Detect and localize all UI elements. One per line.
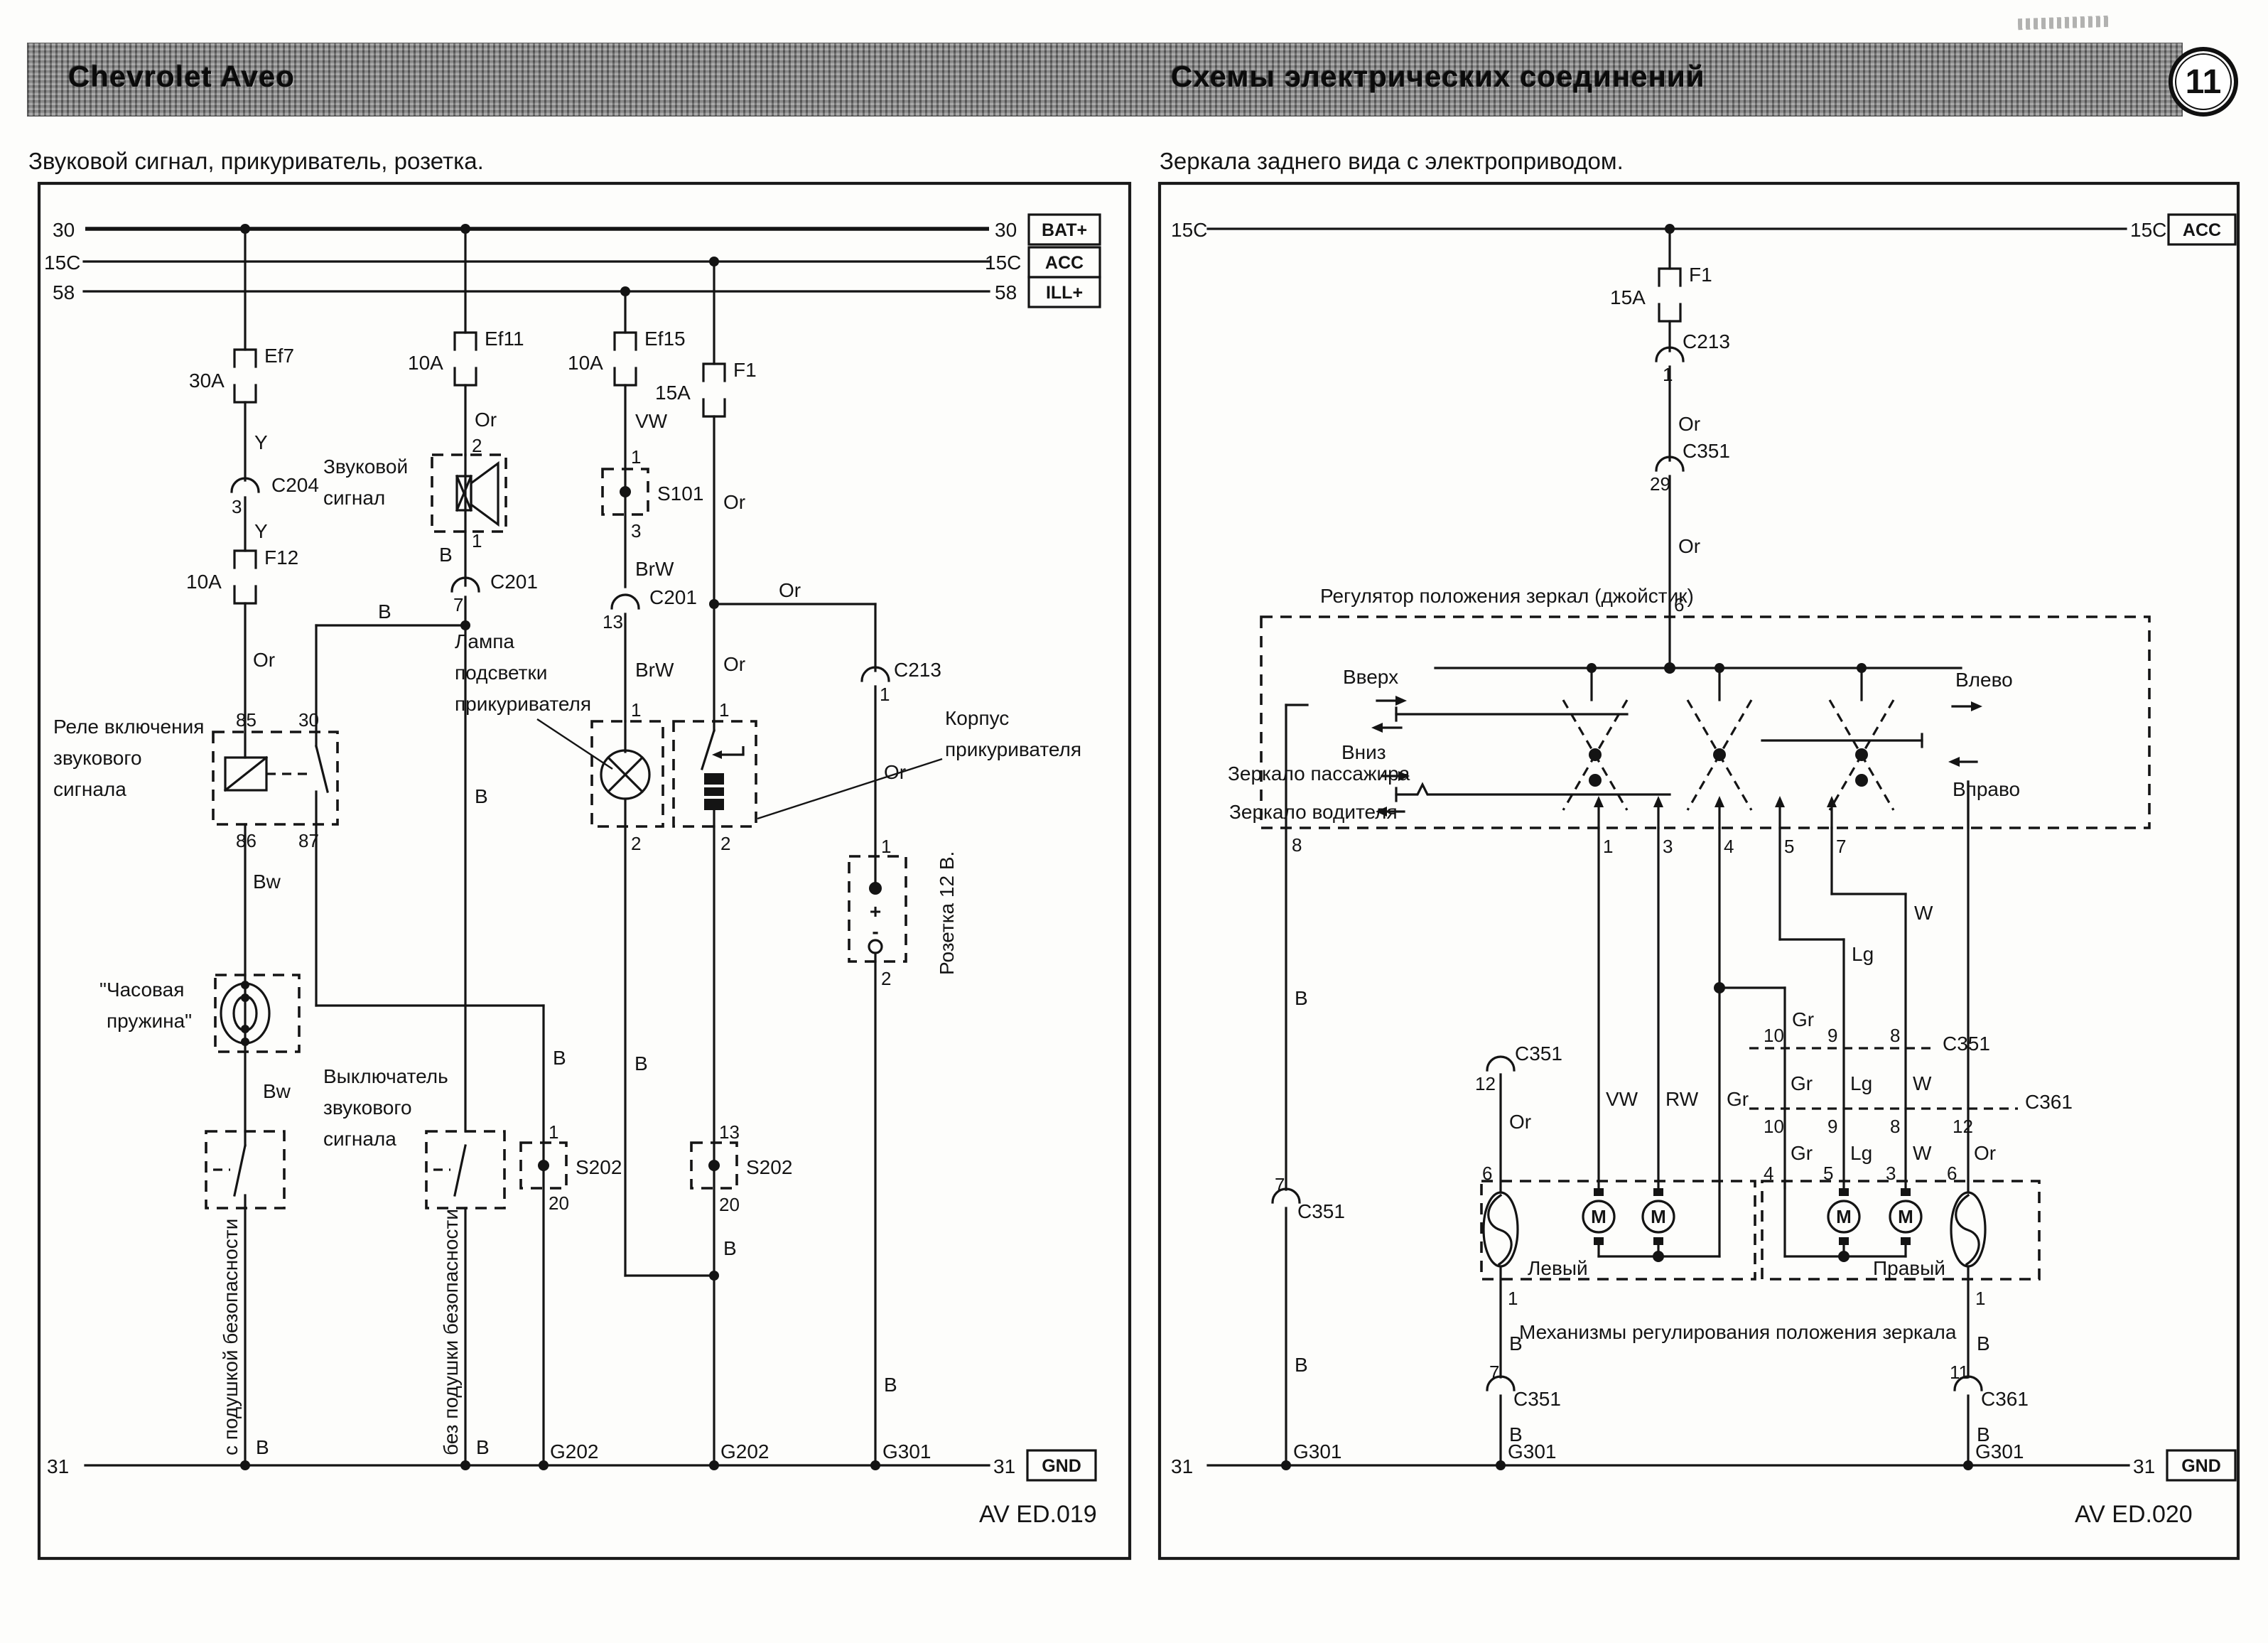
wire-label: W [1913, 1072, 1932, 1094]
left-diagram: 30 15C 58 31 30 BAT+ 15C ACC 58 ILL+ 31 … [39, 183, 1130, 1558]
bus-30-right: 30 [995, 219, 1017, 241]
relay-coil-icon [225, 758, 266, 790]
pin: 1 [631, 446, 641, 468]
socket-label: Розетка 12 В. [936, 851, 958, 975]
wiring-diagrams: Звуковой сигнал, прикуриватель, розетка.… [0, 0, 2268, 1643]
wire-label: W [1913, 1142, 1932, 1164]
pin: 7 [1836, 836, 1846, 857]
pin: 85 [236, 709, 256, 731]
wire-label: RW [1665, 1088, 1699, 1110]
dir-down: Вниз [1341, 741, 1386, 763]
pin: 3 [631, 520, 641, 542]
wire-label: Or [253, 649, 275, 671]
fuse-f1-label: F1 [733, 359, 757, 381]
wire-label: Gr [1791, 1072, 1813, 1094]
lamp-label-1: Лампа [455, 630, 514, 652]
dir-right: Вправо [1953, 778, 2020, 800]
wire-label: BrW [635, 659, 674, 681]
pin: 10 [1764, 1116, 1784, 1137]
ground-label: G301 [1293, 1440, 1342, 1462]
joystick-label: Регулятор положения зеркал (джойстик) [1320, 585, 1694, 607]
dir-up: Вверх [1343, 666, 1398, 688]
wire-label: Y [254, 520, 268, 542]
wire-label: Y [254, 431, 268, 453]
wire-label: B [1295, 987, 1308, 1009]
dir-left: Влево [1955, 669, 2013, 691]
wire-label: Lg [1850, 1142, 1872, 1164]
bus-31-right: 31 [2133, 1455, 2155, 1477]
clock-spring-icon [215, 975, 299, 1052]
spring-label-1: "Часовая [99, 979, 184, 1001]
splice-s202-label: S202 [746, 1156, 792, 1178]
right-caption: AV ED.020 [2075, 1501, 2193, 1528]
bus-15c-label: 15C [44, 252, 80, 274]
manual-page: { "header": { "brand": "Chevrolet Aveo",… [0, 0, 2268, 1643]
bus-58-right: 58 [995, 281, 1017, 303]
horn-relay-branch: Ef7 30A Y 3 C204 Y F12 10A Or [186, 224, 319, 758]
fuse-f1-amps: 15A [655, 382, 691, 404]
wire-label: B [553, 1047, 566, 1069]
wire-label: B [256, 1436, 269, 1458]
fuse-ef7-label: Ef7 [264, 345, 294, 367]
wire-label: Bw [263, 1080, 291, 1102]
heater-icon [1951, 1192, 1985, 1266]
pin: 29 [1650, 473, 1670, 495]
wire-label: Or [884, 761, 906, 783]
fuse-ef15-amps: 10A [568, 352, 603, 374]
lighter-housing-icon [674, 721, 756, 826]
motor-letter: M [1591, 1206, 1606, 1227]
motor-letter: M [1651, 1206, 1666, 1227]
wire-label: W [1914, 902, 1933, 924]
left-caption: AV ED.019 [979, 1501, 1097, 1528]
right-diagram-title: Зеркала заднего вида с электроприводом. [1160, 148, 1624, 174]
variant-without-airbag: без подушки безопасности [440, 1209, 462, 1455]
pin: 3 [232, 496, 242, 517]
horn-branch: Ef11 10A Or 2 Звуковой сигнал 1 B 7 C201 [323, 224, 538, 1470]
horn-relay: 85 30 86 87 Реле включения звукового сиг… [53, 709, 337, 851]
housing-label-2: прикуривателя [945, 738, 1081, 760]
bus-31-label: 31 [47, 1455, 69, 1477]
bus-58-label: 58 [53, 281, 75, 303]
wire-label: Gr [1791, 1142, 1813, 1164]
connector-c351-label: C351 [1513, 1388, 1561, 1410]
wire-label: Or [1509, 1111, 1531, 1133]
horn-switch-airbag-icon [206, 1131, 284, 1208]
pin: 1 [472, 530, 482, 551]
joystick-pins: 8 1 3 4 5 7 [1292, 834, 1846, 857]
pin: 1 [1975, 1288, 1985, 1309]
lamp-label-3: прикуривателя [455, 693, 591, 715]
fuse-f1-label: F1 [1689, 264, 1712, 286]
pin: 2 [472, 435, 482, 456]
wire-label: VW [635, 410, 668, 432]
ground-label: G301 [882, 1440, 931, 1462]
bus-31-right: 31 [993, 1455, 1015, 1477]
fuse-ef7-icon [234, 350, 256, 402]
ground-label: G202 [720, 1440, 769, 1462]
wire-label: Or [475, 409, 497, 431]
relay-label-3: сигнала [53, 778, 126, 800]
wire-label: VW [1606, 1088, 1638, 1110]
wire-label: Or [723, 491, 745, 513]
fuse-ef15-label: Ef15 [644, 328, 686, 350]
left-heater-feed: C351 12 Or 6 [1475, 1043, 1562, 1192]
lighter-lamp-branch: Ef15 10A VW 1 S101 3 BrW 13 C201 BrW 1 [455, 286, 714, 1276]
spring-label-2: пружина" [107, 1010, 192, 1032]
fuse-ef15-icon [615, 333, 636, 385]
switch-label-2: звукового [323, 1097, 412, 1119]
pin: 1 [719, 699, 729, 721]
wire-label: Or [779, 579, 801, 601]
right-mirror-mechanism: M M Правый [1762, 1181, 2039, 1279]
leader-line [537, 719, 612, 769]
switch-label-3: сигнала [323, 1128, 396, 1150]
pin: 13 [603, 611, 623, 632]
pin: 8 [1890, 1025, 1900, 1046]
mirror-passenger: Зеркало пассажира [1228, 763, 1410, 785]
splice-s101-label: S101 [657, 483, 703, 505]
horn-switch-noairbag-icon [426, 1131, 504, 1208]
left-mech-label: Левый [1528, 1257, 1588, 1279]
wire-label: Or [1974, 1142, 1996, 1164]
wire-label: Bw [253, 871, 281, 893]
motor-letter: M [1836, 1206, 1852, 1227]
socket-minus: - [872, 920, 878, 942]
wire-label: B [1509, 1332, 1523, 1354]
splice-s202-label: S202 [576, 1156, 622, 1178]
fuse-f1-amps: 15A [1610, 286, 1646, 308]
heater-icon [1484, 1192, 1518, 1266]
wire-label: Or [1678, 535, 1700, 557]
connector-c213-label: C213 [894, 659, 941, 681]
horn-label-1: Звуковой [323, 456, 408, 478]
mirror-driver: Зеркало водителя [1229, 801, 1398, 823]
lamp-label-2: подсветки [455, 662, 547, 684]
connector-c361-label: C361 [2025, 1091, 2073, 1113]
ground-label: G301 [1508, 1440, 1557, 1462]
pin: 10 [1764, 1025, 1784, 1046]
acc-label: ACC [2183, 220, 2221, 240]
gnd-label: GND [1042, 1456, 1081, 1476]
motor-icon: M [1643, 1188, 1674, 1256]
pin: 8 [1890, 1116, 1900, 1137]
mechanisms-label: Механизмы регулирования положения зеркал… [1519, 1321, 1957, 1343]
pin: 1 [631, 699, 641, 721]
pin: 20 [719, 1194, 740, 1215]
relay-switch-icon [316, 732, 328, 824]
lighter-housing-branch: F1 15A Or Or Or 1 2 13 [655, 257, 1081, 1470]
pin: 4 [1724, 836, 1734, 857]
pin: 1 [880, 684, 890, 705]
pin: 12 [1475, 1073, 1496, 1094]
leader-line [757, 759, 942, 819]
fuse-ef11-icon [455, 333, 476, 385]
switch-label-1: Выключатель [323, 1065, 448, 1087]
wire-label: Or [723, 653, 745, 675]
fuse-f12-label: F12 [264, 546, 298, 569]
wire-label: Lg [1850, 1072, 1872, 1094]
left-mirror-ground: 1 B 7 C351 B G301 [1487, 1266, 1561, 1470]
joystick-direction-labels: Вверх Вниз Зеркало пассажира Зеркало вод… [1228, 666, 2020, 823]
pin: 1 [1663, 364, 1673, 385]
pin: 9 [1827, 1025, 1837, 1046]
wire-label: Gr [1792, 1008, 1814, 1030]
fuse-f1-icon [703, 364, 725, 416]
socket-icon: + - [849, 856, 906, 961]
pin: 2 [631, 833, 641, 854]
motor-icon: M [1583, 1188, 1614, 1256]
connector-c361-label: C361 [1981, 1388, 2029, 1410]
wire-label: B [475, 785, 488, 807]
pin: 2 [881, 968, 891, 989]
wire-label: B [378, 600, 391, 623]
connector-c204-label: C204 [271, 474, 319, 496]
pin: 1 [1603, 836, 1613, 857]
right-mech-label: Правый [1873, 1257, 1945, 1279]
wire-label: BrW [635, 558, 674, 580]
power-buses: 30 15C 58 31 30 BAT+ 15C ACC 58 ILL+ 31 … [44, 215, 1100, 1480]
fuse-ef7-amps: 30A [189, 370, 225, 392]
connector-c201-icon [612, 595, 639, 608]
joystick-ground-line: B 7 C351 B G301 [1273, 828, 1345, 1470]
wire-label: Lg [1852, 943, 1874, 965]
pin: 12 [1953, 1116, 1973, 1137]
pin: 20 [549, 1192, 569, 1214]
power-buses: 15C 15C ACC 31 31 GND [1171, 215, 2235, 1480]
variant-with-airbag: с подушкой безопасности [220, 1219, 242, 1455]
wire-label: Gr [1727, 1088, 1749, 1110]
fuse-ef11-label: Ef11 [485, 328, 524, 350]
socket-plus: + [870, 900, 881, 922]
connector-c201-label: C201 [490, 571, 538, 593]
pin: 1 [1508, 1288, 1518, 1309]
pin: 5 [1784, 836, 1794, 857]
mirror-joystick: Вверх Вниз Зеркало пассажира Зеркало вод… [1228, 617, 2149, 828]
bus-15c-right: 15C [2130, 219, 2166, 241]
right-mirror-ground: 1 B 11 C361 B G301 [1950, 1266, 2029, 1470]
wire-label: B [884, 1374, 897, 1396]
connector-c361-row: C361 10 9 8 12 Gr Lg W Or 4 5 3 6 [1749, 1091, 2073, 1192]
connector-c351-label: C351 [1683, 440, 1730, 462]
acc-label: ACC [1045, 253, 1084, 273]
fuse-f12-icon [234, 551, 256, 603]
pin: 8 [1292, 834, 1302, 856]
bus-30-label: 30 [53, 219, 75, 241]
pin: 3 [1663, 836, 1673, 857]
wire-label: B [476, 1436, 490, 1458]
pin: 7 [453, 594, 463, 615]
relay-label-2: звукового [53, 747, 142, 769]
motor-icon: M [1890, 1188, 1921, 1256]
right-frame [1160, 183, 2238, 1558]
right-diagram: 15C 15C ACC 31 31 GND F1 15A C213 1 Or [1160, 183, 2238, 1558]
connector-c213-label: C213 [1683, 330, 1730, 352]
housing-label-1: Корпус [945, 707, 1009, 729]
wire-label: B [439, 544, 453, 566]
pin: 2 [720, 833, 730, 854]
pin: 1 [549, 1121, 558, 1143]
left-diagram-title: Звуковой сигнал, прикуриватель, розетка. [28, 148, 484, 174]
horn-speaker-icon [432, 455, 506, 532]
wire-label: B [634, 1052, 648, 1074]
wire-label: B [723, 1237, 737, 1259]
motor-icon: M [1828, 1188, 1859, 1256]
gnd-label: GND [2181, 1456, 2221, 1476]
bus-31-label: 31 [1171, 1455, 1193, 1477]
motor-letter: M [1898, 1206, 1913, 1227]
left-mirror-mechanism: M M Левый [1481, 1181, 1755, 1279]
ground-label: G202 [550, 1440, 599, 1462]
wire-label: B [1295, 1354, 1308, 1376]
connector-c351-label: C351 [1297, 1200, 1345, 1222]
connector-c351-label: C351 [1943, 1033, 1990, 1055]
clock-spring-branch: Bw "Часовая пружина" Bw с подушкой [99, 824, 299, 1470]
connector-c351-icon [1487, 1057, 1514, 1070]
wire-label: Or [1678, 413, 1700, 435]
lamp-icon [592, 721, 663, 826]
socket-branch: 1 C213 Or 1 + - Розетка 12 В. 2 B G301 [849, 604, 958, 1470]
relay-label-1: Реле включения [53, 716, 204, 738]
connector-c201-label: C201 [649, 586, 697, 608]
bus-15c-label: 15C [1171, 219, 1207, 241]
pin: 13 [719, 1121, 740, 1143]
horn-label-2: сигнал [323, 487, 385, 509]
fuse-f12-amps: 10A [186, 571, 222, 593]
fuse-ef11-amps: 10A [408, 352, 443, 374]
ground-label: G301 [1975, 1440, 2024, 1462]
wire-label: B [1977, 1332, 1990, 1354]
bus-15c-right: 15C [985, 252, 1021, 274]
ill-label: ILL+ [1046, 283, 1083, 303]
pin: 1 [881, 836, 891, 857]
fuse-f1-icon [1659, 269, 1680, 321]
connector-c351-label: C351 [1515, 1043, 1562, 1065]
pin: 9 [1827, 1116, 1837, 1137]
bat-label: BAT+ [1042, 220, 1087, 240]
